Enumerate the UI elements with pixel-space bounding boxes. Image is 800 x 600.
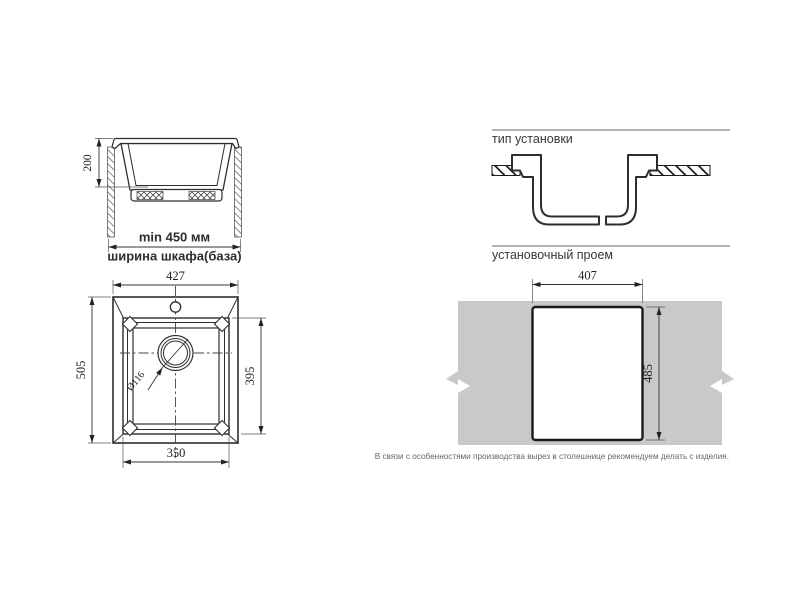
cabinet-wall-right [235,147,242,237]
sink-spec-sheet: 200 min 450 мм ширина шкафа(база) [0,0,800,600]
opening-width-value: 407 [578,269,597,283]
opening-heading: установочный проем [492,248,613,262]
bowl-width-value: 350 [167,446,186,460]
opening-depth-value: 485 [641,364,655,383]
depth-value: 200 [82,154,94,172]
countertop-edge-right [650,166,710,176]
sink-cross-section [112,139,239,202]
drawing-canvas: 200 min 450 мм ширина шкафа(база) [0,0,800,600]
installation-type-section: тип установки [492,130,730,225]
mounting-pad-left [137,192,163,200]
overall-depth-value: 505 [74,361,88,380]
sink-profile-left [512,155,599,225]
bowl-outer-wall [121,144,232,191]
overall-depth-dimension: 505 [74,297,111,443]
sink-profile-right [606,155,657,225]
opening-section: установочный проем 407 485 В [375,246,734,461]
cabinet-width-label: ширина шкафа(база) [107,249,241,264]
side-view-section: 200 min 450 мм ширина шкафа(база) [82,139,242,264]
cabinet-wall-left [108,147,115,237]
mounting-pad-right [189,192,215,200]
opening-width-dimension: 407 [533,269,643,304]
installation-heading: тип установки [492,132,573,146]
overall-width-value: 427 [166,269,185,283]
bowl-depth-value: 395 [243,367,257,386]
min-width-label: min 450 мм [139,230,210,245]
production-note: В связи с особенностями производства выр… [375,452,729,461]
faucet-hole [170,302,180,312]
cabinet-width-dimension: min 450 мм ширина шкафа(база) [107,230,241,264]
top-view-section: Ø116 427 505 395 350 [74,269,266,468]
cutout-opening [533,307,643,440]
